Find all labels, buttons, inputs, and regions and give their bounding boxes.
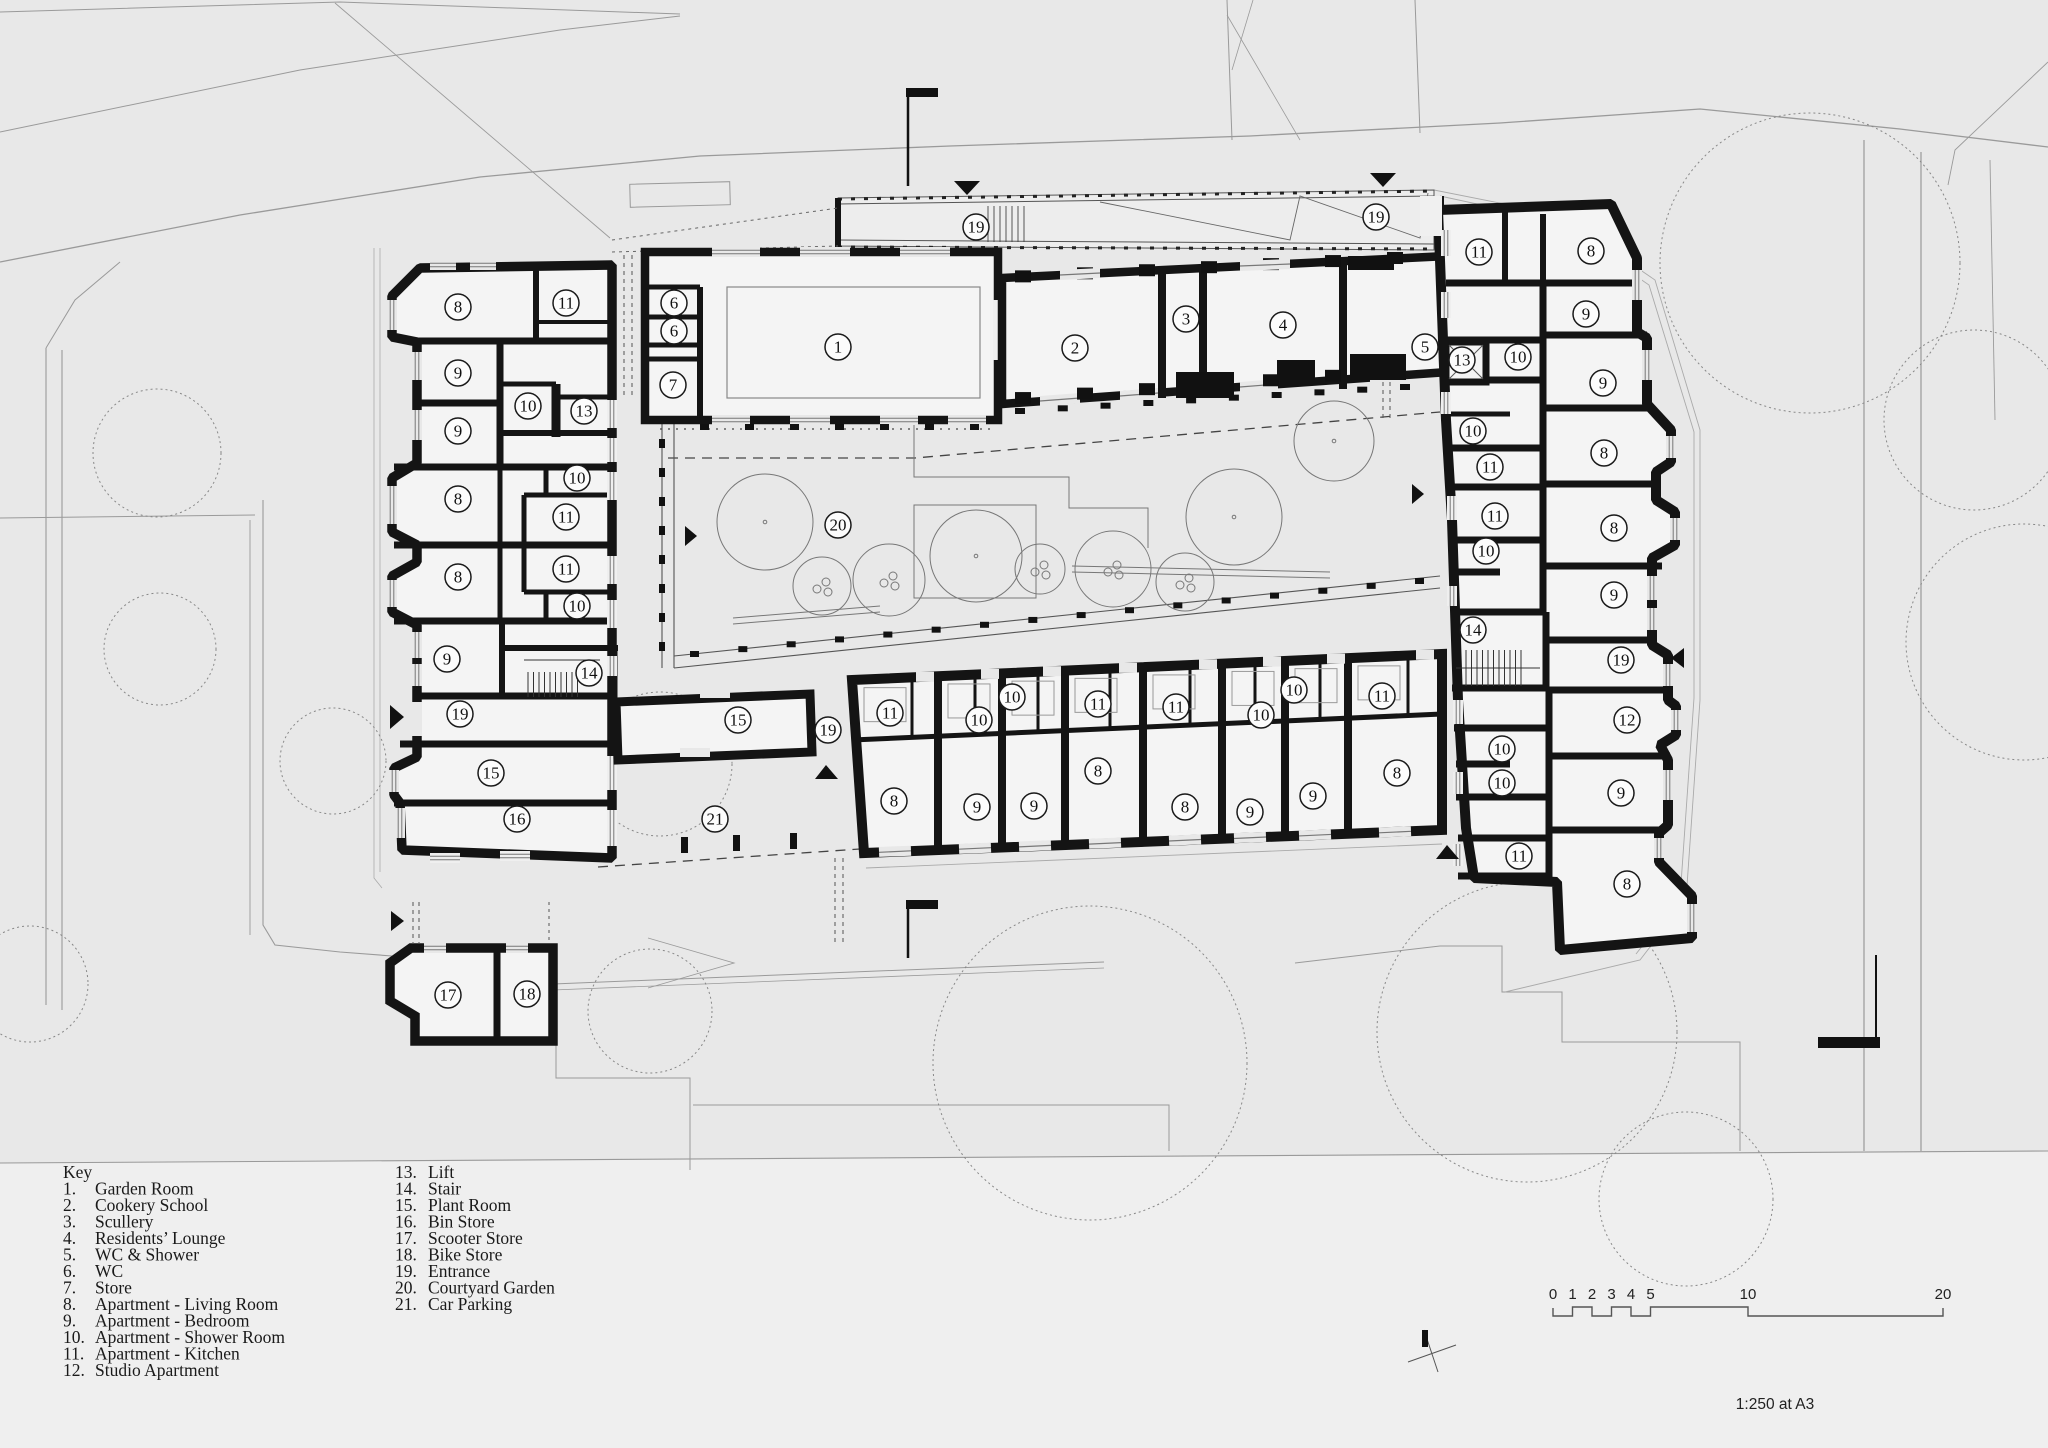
svg-text:17: 17 [440,986,458,1005]
svg-text:11: 11 [558,560,574,579]
svg-text:2: 2 [1071,339,1080,358]
svg-text:9: 9 [1030,797,1039,816]
svg-text:10: 10 [1286,681,1303,700]
svg-text:9: 9 [1582,305,1591,324]
svg-text:8: 8 [1623,875,1632,894]
svg-text:9: 9 [1610,586,1619,605]
svg-text:18: 18 [519,985,536,1004]
svg-text:11: 11 [1374,687,1390,706]
svg-text:9: 9 [1309,787,1318,806]
svg-text:10: 10 [520,397,537,416]
svg-text:20: 20 [830,516,847,535]
svg-text:11: 11 [1482,458,1498,477]
svg-text:8: 8 [454,298,463,317]
svg-text:5: 5 [1421,338,1430,357]
svg-text:9: 9 [454,422,463,441]
svg-text:11: 11 [558,294,574,313]
svg-text:10: 10 [1465,422,1482,441]
svg-text:16: 16 [509,810,526,829]
svg-text:12.: 12. [63,1360,85,1380]
svg-text:11: 11 [882,704,898,723]
svg-text:10: 10 [1510,348,1527,367]
svg-text:0: 0 [1549,1286,1557,1303]
svg-text:10: 10 [1004,688,1021,707]
svg-text:1:250 at A3: 1:250 at A3 [1736,1396,1814,1413]
svg-text:6: 6 [670,322,679,341]
svg-text:11: 11 [1090,695,1106,714]
svg-text:21.: 21. [395,1294,417,1314]
svg-text:5: 5 [1646,1286,1654,1303]
svg-text:19: 19 [1613,651,1630,670]
svg-text:10: 10 [1478,542,1495,561]
svg-text:10: 10 [1253,706,1270,725]
svg-text:11: 11 [1487,507,1503,526]
svg-text:7: 7 [669,376,678,395]
svg-text:13: 13 [576,402,593,421]
svg-text:8: 8 [1600,444,1609,463]
svg-text:9: 9 [1599,374,1608,393]
svg-text:3: 3 [1607,1286,1615,1303]
svg-text:19: 19 [820,721,837,740]
svg-text:10: 10 [1740,1286,1757,1303]
svg-text:19: 19 [452,705,469,724]
svg-text:Car Parking: Car Parking [428,1294,512,1314]
svg-text:9: 9 [443,650,452,669]
svg-text:8: 8 [1181,798,1190,817]
svg-text:15: 15 [483,764,500,783]
svg-text:10: 10 [971,711,988,730]
svg-text:11: 11 [1471,243,1487,262]
svg-text:8: 8 [454,568,463,587]
svg-text:15: 15 [730,711,747,730]
svg-text:9: 9 [1246,803,1255,822]
svg-text:10: 10 [569,597,586,616]
svg-text:8: 8 [890,792,899,811]
svg-text:20: 20 [1935,1286,1952,1303]
svg-text:10: 10 [569,469,586,488]
svg-text:3: 3 [1182,310,1191,329]
svg-text:8: 8 [1094,762,1103,781]
svg-text:4: 4 [1627,1286,1635,1303]
svg-text:8: 8 [1393,764,1402,783]
svg-text:2: 2 [1588,1286,1596,1303]
svg-text:1: 1 [1568,1286,1576,1303]
svg-text:11: 11 [1168,698,1184,717]
svg-text:12: 12 [1619,711,1636,730]
svg-text:9: 9 [973,798,982,817]
svg-text:6: 6 [670,294,679,313]
svg-text:8: 8 [1587,242,1596,261]
svg-text:19: 19 [1368,208,1385,227]
svg-text:19: 19 [968,218,985,237]
svg-text:10: 10 [1494,774,1511,793]
svg-text:9: 9 [1617,784,1626,803]
svg-text:11: 11 [1511,847,1527,866]
svg-text:11: 11 [558,508,574,527]
svg-text:1: 1 [834,338,843,357]
svg-text:8: 8 [454,490,463,509]
svg-text:14: 14 [1465,621,1483,640]
svg-text:8: 8 [1610,519,1619,538]
svg-text:14: 14 [581,664,599,683]
svg-text:Studio Apartment: Studio Apartment [95,1360,219,1380]
svg-text:4: 4 [1279,316,1288,335]
svg-text:9: 9 [454,364,463,383]
svg-text:10: 10 [1494,740,1511,759]
svg-text:21: 21 [707,810,724,829]
svg-text:13: 13 [1454,351,1471,370]
